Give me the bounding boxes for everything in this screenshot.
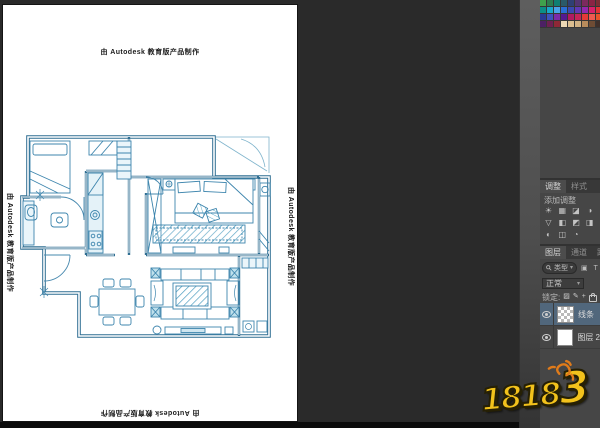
color-swatch[interactable] — [561, 0, 568, 7]
filter-kind-dropdown[interactable]: 类型 ▾ — [542, 262, 577, 274]
floor-plan — [3, 5, 299, 423]
master-bedroom-furniture — [148, 179, 255, 253]
color-swatch[interactable] — [575, 14, 582, 21]
color-swatch[interactable] — [547, 14, 554, 21]
tab-channels[interactable]: 通道 — [566, 246, 592, 259]
color-swatch[interactable] — [568, 14, 575, 21]
dining-furniture — [40, 279, 144, 325]
color-swatch[interactable] — [561, 7, 568, 14]
filter-kind-label: 类型 — [554, 263, 568, 273]
color-swatch[interactable] — [540, 7, 547, 14]
chevron-down-icon: ▾ — [577, 280, 580, 287]
curves-icon[interactable]: ◪ — [571, 206, 582, 215]
lock-label: 锁定: — [542, 292, 560, 303]
canvas-bottom-edge — [0, 422, 540, 428]
layer-thumbnail-transparent[interactable] — [557, 306, 574, 323]
color-swatch[interactable] — [547, 7, 554, 14]
tab-layers[interactable]: 图层 — [540, 246, 566, 259]
color-swatch[interactable] — [589, 0, 596, 7]
tab-paths[interactable]: 路径 — [592, 246, 600, 259]
color-swatch[interactable] — [547, 21, 554, 28]
kitchen-furniture — [88, 173, 103, 253]
color-swatch[interactable] — [596, 21, 600, 28]
hue-saturation-icon[interactable]: ◧ — [557, 218, 568, 227]
chevron-down-icon: ▾ — [570, 264, 573, 271]
color-swatch[interactable] — [547, 0, 554, 7]
adjustment-icons-grid: ☀▦◪◑▽◧◩◨◐◫◔ — [543, 206, 598, 239]
color-swatch[interactable] — [596, 7, 600, 14]
color-lookup-icon[interactable]: ◔ — [571, 230, 582, 239]
tab-adjustments[interactable]: 调整 — [540, 180, 566, 193]
layer-row-lines[interactable]: 线条 — [540, 303, 600, 326]
panel-dock-divider[interactable] — [519, 0, 540, 428]
color-swatch[interactable] — [596, 14, 600, 21]
color-swatch[interactable] — [596, 0, 600, 7]
color-swatch[interactable] — [582, 0, 589, 7]
color-swatch[interactable] — [561, 21, 568, 28]
lock-row: 锁定: ▨ ✎ + — [540, 291, 600, 303]
autodesk-watermark-bottom: 由 Autodesk 教育版产品制作 — [3, 408, 297, 418]
layer-name[interactable]: 线条 — [578, 309, 594, 320]
color-swatch[interactable] — [540, 21, 547, 28]
blend-mode-row: 正常 ▾ — [540, 276, 600, 290]
tab-styles[interactable]: 样式 — [566, 180, 592, 193]
autodesk-watermark-right: 由 Autodesk 教育版产品制作 — [286, 187, 296, 286]
living-balcony — [242, 258, 268, 332]
bathroom-furniture — [23, 201, 68, 245]
color-swatch[interactable] — [568, 0, 575, 7]
photo-filter-icon[interactable]: ◐ — [543, 230, 554, 239]
brightness-contrast-icon[interactable]: ☀ — [543, 206, 554, 215]
color-swatch[interactable] — [582, 21, 589, 28]
black-white-icon[interactable]: ◨ — [584, 218, 595, 227]
layer-list: 线条 图层 2 — [540, 303, 600, 349]
site-watermark-18183: 18183 — [479, 367, 589, 420]
vibrance-icon[interactable]: ▽ — [543, 218, 554, 227]
layer-row-layer2[interactable]: 图层 2 — [540, 326, 600, 349]
eye-icon — [542, 334, 551, 341]
living-room-furniture — [151, 268, 239, 334]
sun-swirl-icon — [544, 358, 576, 387]
exterior-shaft — [214, 137, 269, 173]
layer-name[interactable]: 图层 2 — [577, 332, 600, 343]
color-swatch[interactable] — [540, 0, 547, 7]
eye-icon — [542, 311, 551, 318]
visibility-toggle[interactable] — [540, 303, 554, 325]
visibility-toggle[interactable] — [540, 326, 554, 348]
lock-all-icon[interactable] — [589, 295, 597, 302]
layer-filter-row: 类型 ▾ ▣ T — [540, 260, 600, 275]
channel-mixer-icon[interactable]: ◫ — [557, 230, 568, 239]
lock-position-icon[interactable]: + — [582, 292, 586, 302]
color-swatch[interactable] — [568, 21, 575, 28]
color-swatch[interactable] — [582, 7, 589, 14]
exposure-icon[interactable]: ◑ — [584, 206, 595, 215]
color-swatch[interactable] — [589, 21, 596, 28]
color-swatch[interactable] — [575, 21, 582, 28]
color-swatch[interactable] — [582, 14, 589, 21]
adjustments-tabbar: 调整 样式 — [540, 180, 600, 193]
color-swatch[interactable] — [575, 7, 582, 14]
blend-mode-value: 正常 — [546, 278, 562, 289]
filter-type-icons[interactable]: ▣ T — [581, 264, 600, 272]
color-swatch[interactable] — [554, 0, 561, 7]
magnifier-icon — [546, 265, 552, 271]
swatches-panel — [540, 0, 600, 28]
color-swatch[interactable] — [589, 14, 596, 21]
color-swatch[interactable] — [575, 0, 582, 7]
color-swatch[interactable] — [554, 21, 561, 28]
levels-icon[interactable]: ▦ — [557, 206, 568, 215]
autodesk-watermark-left: 由 Autodesk 教育版产品制作 — [5, 193, 15, 292]
color-swatch[interactable] — [568, 7, 575, 14]
color-swatch[interactable] — [540, 14, 547, 21]
color-swatch[interactable] — [589, 7, 596, 14]
color-swatch[interactable] — [554, 7, 561, 14]
layers-tabbar: 图层 通道 路径 — [540, 246, 600, 259]
lock-pixels-icon[interactable]: ✎ — [573, 292, 579, 302]
autodesk-watermark-top: 由 Autodesk 教育版产品制作 — [3, 47, 297, 57]
document-page: 由 Autodesk 教育版产品制作 由 Autodesk 教育版产品制作 由 … — [2, 4, 298, 422]
color-balance-icon[interactable]: ◩ — [571, 218, 582, 227]
color-swatch[interactable] — [561, 14, 568, 21]
add-adjustment-label: 添加调整 — [544, 195, 576, 206]
blend-mode-dropdown[interactable]: 正常 ▾ — [542, 278, 584, 289]
lock-transparency-icon[interactable]: ▨ — [563, 292, 570, 302]
color-swatch[interactable] — [554, 14, 561, 21]
layer-thumbnail-white[interactable] — [557, 329, 574, 346]
